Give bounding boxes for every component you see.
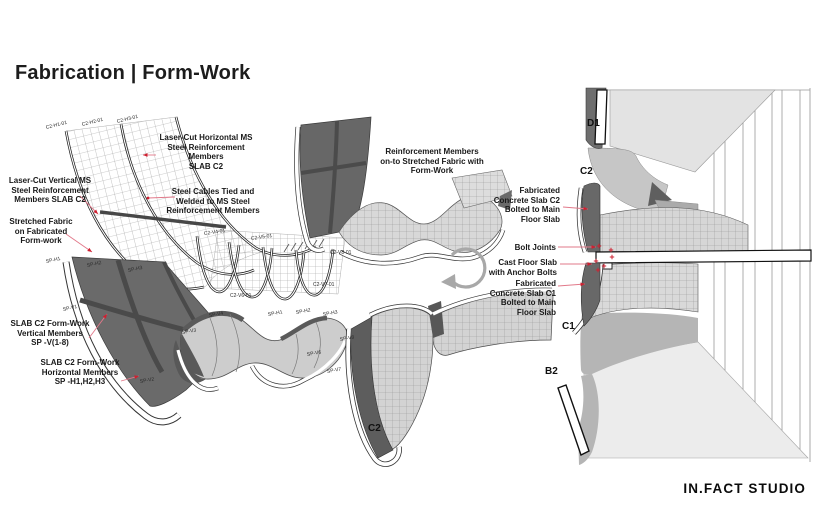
studio-logo: IN.FACT STUDIO — [683, 481, 806, 496]
page-title: Fabrication | Form-Work — [15, 62, 250, 85]
callout-fabricated-slab-c2: Fabricated Concrete Slab C2 Bolted to Ma… — [494, 186, 560, 224]
part-label: C2 — [368, 423, 381, 434]
callout-slab-horizontal-members: SLAB C2 Form-Work Horizontal Members SP … — [41, 358, 120, 387]
callout-slab-vertical-members: SLAB C2 Form-Work Vertical Members SP -V… — [11, 319, 90, 348]
slide-canvas: Fabrication | Form-Work IN.FACT STUDIO C… — [0, 0, 814, 516]
callout-stretched-fabric: Stretched Fabric on Fabricated Form-work — [9, 217, 72, 246]
callout-laser-cut-vertical: Laser-Cut Vertical MS Steel Reinforcemen… — [9, 176, 91, 205]
callout-reinforcement-members: Reinforcement Members on-to Stretched Fa… — [380, 147, 484, 176]
callout-bolt-joints: Bolt Joints — [515, 243, 556, 253]
callout-fabricated-slab-c1: Fabricated Concrete Slab C1 Bolted to Ma… — [490, 279, 556, 317]
part-label: C2 — [580, 166, 593, 177]
callout-laser-cut-horizontal: Laser-Cut Horizontal MS Steel Reinforcem… — [160, 133, 253, 171]
leader-arrowhead — [87, 248, 93, 254]
part-label: D1 — [587, 118, 600, 129]
part-label: B2 — [545, 366, 558, 377]
part-label: C2-V8-01 — [330, 250, 351, 256]
leader-dot — [147, 197, 150, 200]
part-label: C1 — [562, 321, 575, 332]
part-label: C2-V7-01 — [313, 282, 334, 288]
formwork-members-drawing — [173, 313, 347, 389]
callout-steel-cables: Steel Cables Tied and Welded to MS Steel… — [166, 187, 259, 216]
part-label: C2-V6-01 — [230, 293, 251, 299]
callout-cast-floor-slab: Cast Floor Slab with Anchor Bolts — [489, 258, 557, 277]
detail-section-drawing — [558, 88, 811, 465]
